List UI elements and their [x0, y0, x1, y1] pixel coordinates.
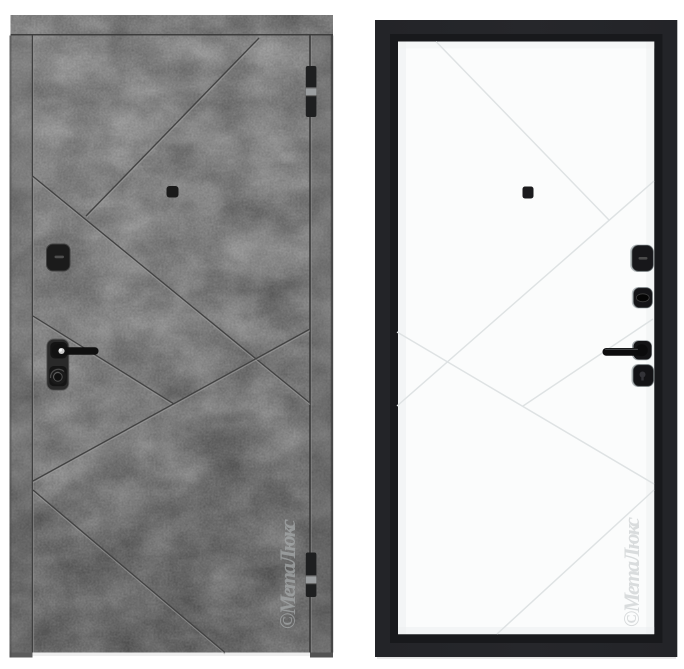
svg-text:©МетаЛюкс: ©МетаЛюкс [275, 519, 300, 629]
svg-text:©МетаЛюкс: ©МетаЛюкс [619, 517, 644, 627]
